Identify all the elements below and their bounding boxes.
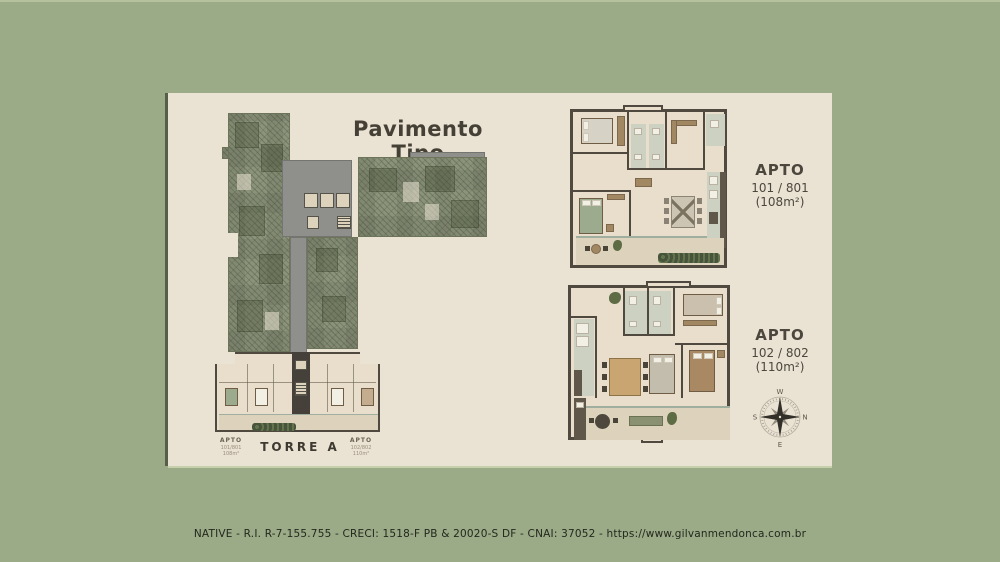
bed: [331, 388, 344, 406]
laundry-tub: [710, 120, 719, 128]
apt-102-label: APTO 102 / 802 (110m²): [735, 326, 825, 374]
service-room: [307, 216, 319, 229]
bathroom: [631, 124, 646, 168]
balcony-ledge: [623, 105, 663, 112]
pillow: [582, 200, 591, 206]
chair: [643, 374, 648, 380]
apt-area-text: (110m²): [735, 360, 825, 374]
chair: [602, 362, 607, 368]
pillow: [716, 307, 722, 315]
compass-left-label: S: [753, 414, 758, 422]
sink: [634, 154, 642, 160]
wardrobe: [683, 320, 717, 326]
apt-area-text: 110m²: [334, 451, 388, 457]
chair: [697, 208, 702, 214]
patio-table: [595, 414, 610, 429]
pillow: [592, 200, 601, 206]
chair: [697, 218, 702, 224]
roof-terrace: [425, 204, 439, 220]
balcony-ledge: [646, 281, 691, 288]
interior-wall: [573, 190, 629, 192]
bed: [581, 118, 613, 144]
chair: [643, 386, 648, 392]
site-plan: APTO 101/801 108m² TORRE A APTO 102/802 …: [168, 93, 508, 466]
elevator: [336, 193, 350, 208]
interior-wall: [623, 334, 675, 336]
chair: [643, 362, 648, 368]
pillow: [704, 353, 713, 359]
interior-wall: [673, 288, 675, 336]
bathroom: [649, 291, 671, 334]
dining-table: [671, 196, 695, 228]
pillow: [653, 357, 662, 363]
cabinet: [709, 212, 718, 224]
interior-wall: [573, 152, 627, 154]
bathroom: [649, 124, 664, 168]
roof-notch: [228, 233, 238, 257]
pillow: [664, 357, 673, 363]
bed: [689, 350, 715, 392]
interior-wall: [353, 364, 354, 412]
toilet: [634, 128, 642, 135]
pillow: [716, 297, 722, 305]
sink: [652, 154, 660, 160]
interior-wall: [629, 190, 631, 238]
apt-label-text: APTO: [334, 437, 388, 445]
interior-wall: [627, 168, 705, 170]
slide-background: Pavimento Tipo: [0, 0, 1000, 562]
nightstand: [606, 224, 614, 232]
pillow: [583, 121, 589, 130]
corridor: [290, 237, 307, 355]
bathroom: [625, 291, 647, 334]
bench: [629, 416, 663, 426]
apt-label-text: APTO: [735, 161, 825, 179]
rooftop-unit: [235, 122, 259, 148]
roof-block-lower: [307, 237, 358, 349]
rooftop-unit: [425, 166, 455, 192]
rooftop-unit: [239, 206, 265, 236]
rooftop-unit: [316, 248, 338, 272]
interior-wall: [627, 112, 629, 170]
compass-right-label: N: [802, 414, 807, 422]
hedge: [658, 253, 720, 263]
pillow: [583, 133, 589, 142]
apt-units-text: 101 / 801: [735, 181, 825, 195]
stairs: [295, 382, 307, 396]
chair: [589, 418, 594, 423]
patio-table: [591, 244, 601, 254]
bed: [361, 388, 374, 406]
kitchen-counter: [574, 398, 586, 440]
roof-terrace: [237, 174, 251, 190]
rooftop-unit: [322, 296, 346, 322]
washer: [576, 323, 589, 334]
rooftop-unit: [451, 200, 479, 228]
sink: [653, 321, 661, 327]
nightstand: [717, 350, 725, 358]
compass-rose: W N E S: [748, 385, 812, 449]
interior-wall: [665, 112, 667, 170]
bed: [683, 294, 723, 316]
pillow: [693, 353, 702, 359]
roof-terrace: [403, 182, 419, 202]
top-highlight-line: [0, 0, 1000, 2]
elevator: [295, 360, 307, 370]
tower-notch: [360, 352, 380, 364]
bed: [255, 388, 268, 406]
stairs: [337, 216, 351, 229]
chair: [585, 246, 590, 251]
fridge: [709, 176, 718, 185]
interior-wall: [327, 364, 328, 412]
interior-wall: [595, 316, 597, 398]
interior-wall: [703, 112, 705, 170]
footer-credits: NATIVE - R.I. R-7-155.755 - CRECI: 1518-…: [0, 528, 1000, 540]
apt-101-floorplan: [570, 109, 727, 268]
toilet: [653, 296, 661, 305]
apt-101-label: APTO 101 / 801 (108m²): [735, 161, 825, 209]
toilet: [629, 296, 637, 305]
panel-bottom-highlight: [168, 466, 832, 468]
stove: [709, 190, 718, 199]
wardrobe: [607, 194, 625, 200]
chair: [602, 374, 607, 380]
service-core: [282, 160, 352, 237]
dining-table: [609, 358, 641, 396]
apt-102-floorplan: [568, 285, 730, 440]
apt-units-text: 102 / 802: [735, 346, 825, 360]
plant: [609, 292, 621, 304]
kitchen-counter: [574, 370, 582, 396]
bed: [225, 388, 238, 406]
chair: [602, 386, 607, 392]
rooftop-unit: [237, 300, 263, 332]
chair: [613, 418, 618, 423]
roof-wing-right: [358, 157, 487, 237]
rooftop-unit: [261, 144, 283, 172]
service-area: [706, 114, 725, 146]
roof-balcony-ledge: [222, 147, 229, 159]
interior-wall: [273, 364, 274, 412]
sideboard: [635, 178, 652, 187]
elevator: [304, 193, 318, 208]
chair: [664, 198, 669, 204]
compass-bottom-label: E: [778, 441, 782, 449]
kitchen-counter: [720, 172, 726, 248]
elevator: [320, 193, 334, 208]
toilet: [652, 128, 660, 135]
chair: [664, 208, 669, 214]
wardrobe: [617, 116, 625, 146]
sink: [576, 402, 584, 408]
rooftop-unit: [259, 254, 283, 284]
apt-area-text: (108m²): [735, 195, 825, 209]
desk: [671, 120, 677, 144]
bed: [579, 198, 603, 234]
sink: [629, 321, 637, 327]
washer: [576, 336, 589, 347]
apt-label-text: APTO: [735, 326, 825, 344]
roof-terrace: [265, 312, 279, 330]
tower-a-floorplan: [215, 352, 380, 432]
interior-wall: [571, 316, 597, 318]
floor-plan-panel: Pavimento Tipo: [168, 93, 832, 466]
interior-wall: [681, 345, 683, 398]
tower-apt-102-label: APTO 102/802 110m²: [334, 437, 388, 457]
tower-balcony: [219, 414, 378, 430]
chair: [603, 246, 608, 251]
rooftop-unit: [369, 168, 397, 192]
bed: [649, 354, 675, 394]
compass-top-label: W: [777, 388, 784, 396]
interior-wall: [675, 343, 730, 345]
chair: [664, 218, 669, 224]
hedge: [252, 423, 296, 431]
tower-notch: [215, 352, 235, 364]
interior-wall: [247, 364, 248, 412]
chair: [697, 198, 702, 204]
